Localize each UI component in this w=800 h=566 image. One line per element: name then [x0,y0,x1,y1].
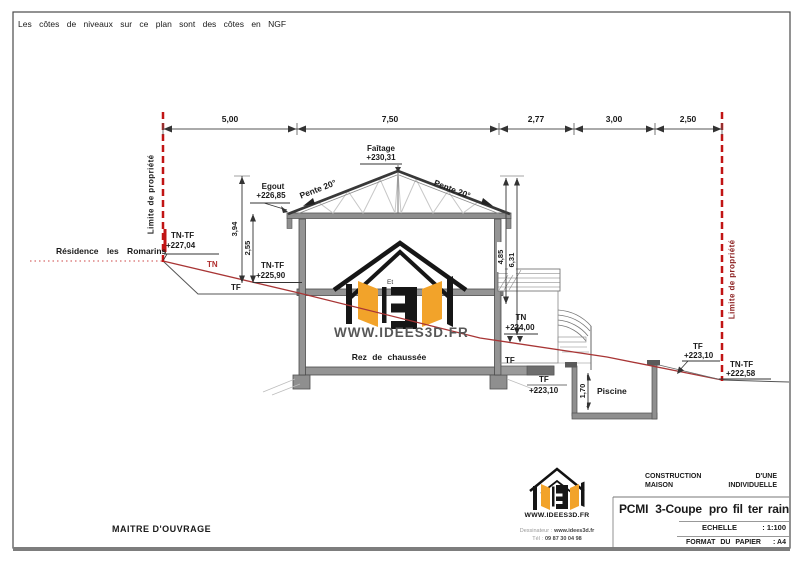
construction-b: D'UNE [756,473,778,481]
watermark-etage: Et [387,279,393,286]
residence-label: Résidence les Romarins [56,247,166,256]
piscine-label: Piscine [597,387,627,396]
format-label: FORMAT DU PAPIER [686,539,761,547]
dessinateur-label: Dessinateur : [520,529,552,535]
tf223-left-value: +223,10 [529,387,558,396]
limite-propriete-left: Limite de propriété [148,134,157,254]
construction-line2: MAISON INDIVIDUELLE [645,482,777,490]
tf223-left-label: TF [539,376,549,385]
rez-de-chaussee-label: Rez de chaussée [349,353,429,362]
tntf-right-value: +222,58 [726,370,755,379]
tel-line: Tél : 09 87 30 04 98 [524,537,590,543]
vdim-2-55: 2,55 [244,233,252,263]
faitage-value: +230,31 [361,154,401,163]
dim-2-77: 2,77 [514,115,558,124]
limite-propriete-right: Limite de propriété [729,224,738,334]
idees3d-watermark-logo [334,243,466,329]
dim-2-50: 2,50 [666,115,710,124]
watermark-url: WWW.IDEES3D.FR [334,326,466,341]
top-dimension-chain [163,123,722,135]
dim-5-00: 5,00 [208,115,252,124]
echelle-label: ECHELLE [702,524,737,532]
dim-3-00: 3,00 [592,115,636,124]
tn-label: TN [207,261,218,270]
maison-b: INDIVIDUELLE [728,482,777,490]
idees3d-logo-small [530,469,585,510]
vdim-6-31: 6,31 [508,245,516,275]
construction-line1: CONSTRUCTION D'UNE [645,473,777,481]
maison-a: MAISON [645,482,673,490]
maitre-douvrage: MAITRE D'OUVRAGE [112,525,211,535]
tf223-right-value: +223,10 [684,352,713,361]
tn224-label: TN [511,314,531,323]
echelle-row: ECHELLE : 1:100 [702,524,786,532]
tel-value: 09 87 30 04 98 [545,537,582,543]
tf-left-label: TF [231,284,241,293]
vdim-4-85: 4,85 [497,242,505,272]
tel-label: Tél : [532,537,543,543]
vdim-3-94: 3,94 [231,214,239,244]
dessinateur-value: www.idees3d.fr [554,529,594,535]
echelle-value: : 1:100 [762,524,786,532]
dim-7-50: 7,50 [368,115,412,124]
tntf-mid-label: TN-TF [261,262,284,271]
page-frame [13,12,790,551]
logo-small-url: WWW.IDEES3D.FR [524,512,590,519]
doc-title-pcmi: PCMI [619,503,648,516]
egout-value: +226,85 [251,192,291,201]
tf-mid-label: TF [505,357,515,366]
vdim-1-70: 1,70 [579,376,587,406]
construction-a: CONSTRUCTION [645,473,701,481]
tntf-mid-value: +225,90 [256,272,285,281]
tn224-value: +224,00 [500,324,540,333]
architectural-section-sheet: Les côtes de niveaux sur ce plan sont de… [0,0,800,566]
doc-title: PCMI 3-Coupe pro fil ter rain [619,503,789,516]
dessinateur-line: Dessinateur : www.idees3d.fr [524,529,590,535]
tntf-left-value: +227,04 [166,242,195,251]
format-row: FORMAT DU PAPIER : A4 [686,539,786,547]
format-value: : A4 [773,539,786,547]
ngf-note: Les côtes de niveaux sur ce plan sont de… [18,20,286,29]
tntf-left-label: TN-TF [171,232,194,241]
doc-title-profil: pro fil ter rain [709,503,789,516]
doc-title-coupe: 3-Coupe [655,503,702,516]
